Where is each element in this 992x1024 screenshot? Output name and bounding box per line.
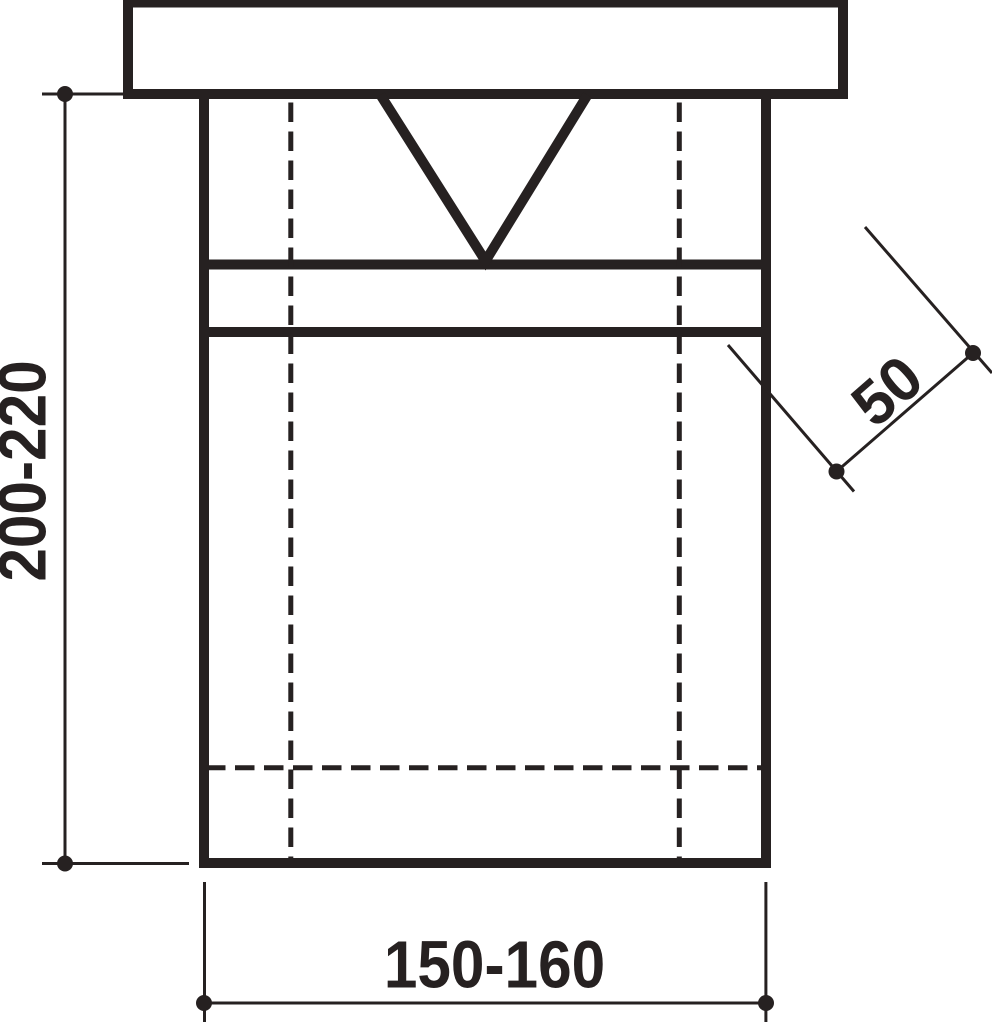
svg-text:200-220: 200-220 xyxy=(0,360,60,581)
svg-text:150-160: 150-160 xyxy=(384,929,605,1002)
